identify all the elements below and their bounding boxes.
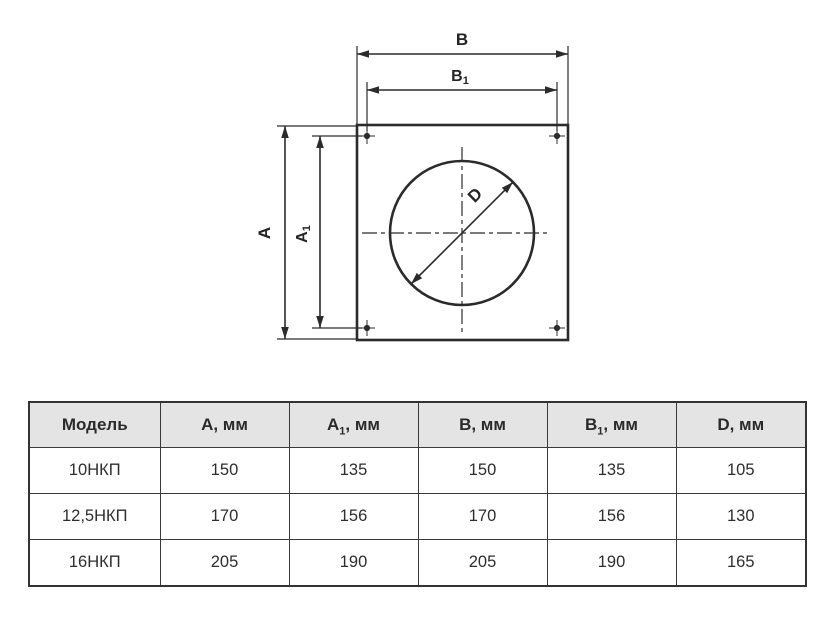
table-row: 12,5НКП 170 156 170 156 130 bbox=[29, 494, 806, 540]
spec-table-header-row: Модель А, мм А1, мм В, мм В1, мм D, мм bbox=[29, 402, 806, 448]
header-b: В, мм bbox=[418, 402, 547, 448]
table-row: 16НКП 205 190 205 190 165 bbox=[29, 540, 806, 587]
cell-b1: 135 bbox=[547, 448, 676, 494]
header-b1: В1, мм bbox=[547, 402, 676, 448]
header-d: D, мм bbox=[676, 402, 806, 448]
dimension-drawing-svg: B B1 A A1 D bbox=[0, 0, 834, 398]
dim-label-b1-base: B bbox=[451, 68, 463, 85]
cell-b: 150 bbox=[418, 448, 547, 494]
header-a1-base: А bbox=[327, 415, 339, 434]
cell-a1: 190 bbox=[289, 540, 418, 587]
cell-a: 150 bbox=[160, 448, 289, 494]
cell-b1: 190 bbox=[547, 540, 676, 587]
cell-d: 105 bbox=[676, 448, 806, 494]
dim-label-a1-sub: 1 bbox=[301, 225, 313, 231]
cell-b1: 156 bbox=[547, 494, 676, 540]
cell-model: 10НКП bbox=[29, 448, 160, 494]
page: B B1 A A1 D Модель А, мм А1, мм В, мм В1… bbox=[0, 0, 834, 625]
dim-label-b1-sub: 1 bbox=[463, 75, 469, 87]
cell-model: 16НКП bbox=[29, 540, 160, 587]
cell-a1: 156 bbox=[289, 494, 418, 540]
dim-label-b: B bbox=[456, 30, 468, 49]
dimension-drawing: B B1 A A1 D bbox=[0, 0, 834, 398]
dim-label-a1-base: A bbox=[294, 231, 311, 243]
cell-d: 165 bbox=[676, 540, 806, 587]
table-row: 10НКП 150 135 150 135 105 bbox=[29, 448, 806, 494]
cell-a1: 135 bbox=[289, 448, 418, 494]
cell-a: 170 bbox=[160, 494, 289, 540]
dim-label-a1: A1 bbox=[294, 225, 313, 243]
cell-model: 12,5НКП bbox=[29, 494, 160, 540]
spec-table: Модель А, мм А1, мм В, мм В1, мм D, мм 1… bbox=[28, 401, 807, 587]
header-a: А, мм bbox=[160, 402, 289, 448]
cell-d: 130 bbox=[676, 494, 806, 540]
dim-label-b1: B1 bbox=[451, 68, 469, 87]
cell-a: 205 bbox=[160, 540, 289, 587]
cell-b: 205 bbox=[418, 540, 547, 587]
header-a1-unit: , мм bbox=[345, 415, 380, 434]
header-a1: А1, мм bbox=[289, 402, 418, 448]
dim-label-a: A bbox=[255, 227, 274, 239]
header-b1-base: В bbox=[585, 415, 597, 434]
cell-b: 170 bbox=[418, 494, 547, 540]
header-model: Модель bbox=[29, 402, 160, 448]
header-b1-unit: , мм bbox=[603, 415, 638, 434]
